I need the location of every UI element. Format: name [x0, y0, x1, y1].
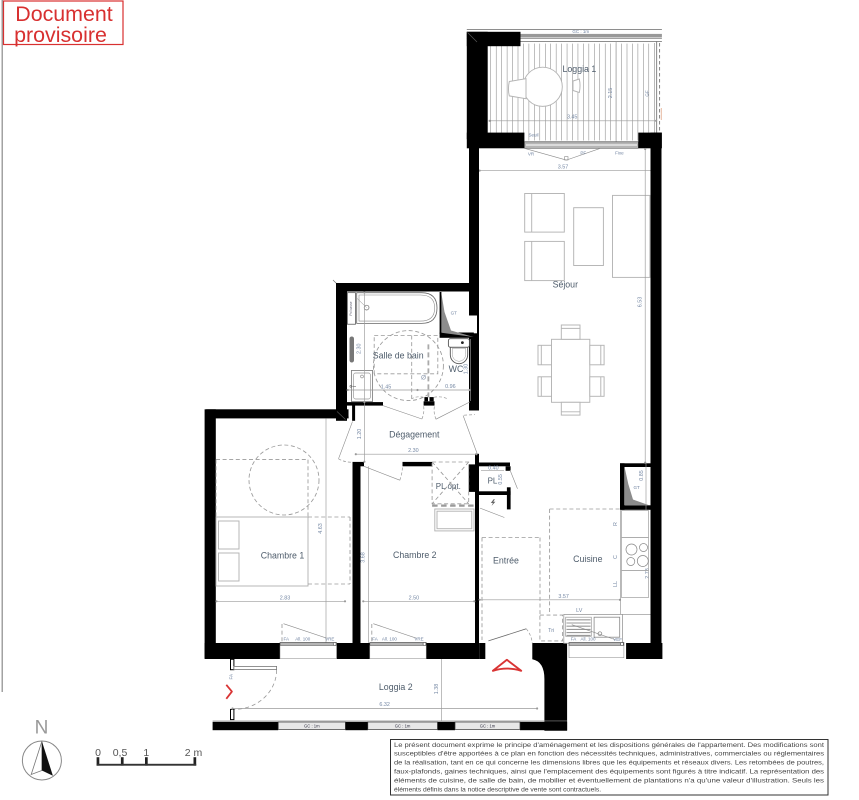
svg-text:0.40: 0.40: [488, 465, 499, 471]
svg-text:Cuisine: Cuisine: [573, 554, 602, 564]
svg-text:Entrée: Entrée: [493, 555, 519, 565]
svg-text:Le présent document exprime le: Le présent document exprime le principe …: [394, 742, 824, 749]
svg-text:éléments définis dans la notic: éléments définis dans la notice descript…: [394, 786, 601, 793]
svg-text:Seuil: Seuil: [528, 133, 538, 138]
svg-text:3.68: 3.68: [360, 552, 366, 563]
svg-text:FA: FA: [571, 637, 577, 642]
svg-text:VRE: VRE: [414, 636, 423, 641]
svg-text:1.38: 1.38: [434, 684, 440, 695]
svg-text:VRE: VRE: [325, 636, 334, 641]
svg-text:VEF: VEF: [613, 637, 622, 642]
svg-text:Chambre 2: Chambre 2: [393, 550, 437, 560]
svg-text:provisoire: provisoire: [14, 23, 107, 47]
svg-text:Séjour: Séjour: [553, 279, 578, 289]
svg-text:3.57: 3.57: [558, 165, 569, 171]
svg-text:6.53: 6.53: [638, 297, 644, 308]
svg-text:4.63: 4.63: [318, 523, 324, 534]
svg-text:WC: WC: [449, 364, 464, 374]
svg-text:0.55: 0.55: [498, 474, 504, 485]
svg-text:GC : 1m: GC : 1m: [572, 29, 589, 34]
svg-text:Salle de bain: Salle de bain: [373, 350, 424, 360]
svg-text:All. 100: All. 100: [580, 636, 596, 641]
svg-text:2.83: 2.83: [280, 595, 291, 601]
svg-text:2.15: 2.15: [608, 88, 614, 99]
svg-text:Loggia 1: Loggia 1: [563, 64, 597, 74]
svg-text:3.57: 3.57: [558, 594, 569, 600]
svg-text:FA: FA: [229, 674, 234, 680]
svg-text:0.96: 0.96: [445, 384, 456, 390]
svg-text:Dégagement: Dégagement: [389, 429, 440, 439]
svg-text:0,5: 0,5: [113, 747, 128, 759]
svg-text:éléments de cuisine, de salle: éléments de cuisine, de salle de bain, d…: [394, 777, 825, 784]
svg-text:LV: LV: [576, 608, 583, 614]
svg-text:2.30: 2.30: [408, 448, 419, 454]
svg-text:de la réalisation, tant en ce: de la réalisation, tant en ce qui concer…: [394, 760, 824, 767]
svg-text:LL: LL: [613, 581, 619, 587]
svg-text:Tri: Tri: [548, 628, 554, 634]
svg-text:2.30: 2.30: [356, 343, 362, 354]
svg-text:susceptibles d'être apportées: susceptibles d'être apportées à ce plan …: [394, 751, 825, 758]
svg-text:GT: GT: [451, 311, 458, 316]
svg-text:Chambre 1: Chambre 1: [261, 550, 305, 560]
svg-text:2.78: 2.78: [645, 568, 651, 579]
svg-text:GC : 1m: GC : 1m: [480, 724, 496, 729]
svg-text:N: N: [35, 718, 49, 739]
svg-text:2.50: 2.50: [409, 595, 420, 601]
svg-text:PL opt.: PL opt.: [436, 482, 461, 491]
svg-text:1.45: 1.45: [381, 384, 392, 390]
svg-text:faux-plafonds, gaines techniqu: faux-plafonds, gaines techniques, ainsi …: [394, 769, 825, 776]
svg-text:FA: FA: [372, 637, 378, 642]
svg-text:PF: PF: [580, 151, 586, 156]
svg-text:Ø: Ø: [421, 375, 426, 382]
svg-text:All. 100: All. 100: [382, 636, 398, 641]
svg-text:All. 100: All. 100: [295, 636, 311, 641]
svg-text:GC : 1m: GC : 1m: [395, 724, 411, 729]
svg-text:1.30: 1.30: [464, 364, 470, 375]
svg-text:R: R: [613, 522, 619, 526]
svg-text:VR: VR: [528, 152, 535, 157]
svg-text:PL: PL: [488, 476, 498, 485]
svg-text:0.85: 0.85: [639, 470, 645, 481]
svg-text:FA: FA: [283, 637, 289, 642]
svg-text:GC : 1m: GC : 1m: [304, 724, 320, 729]
svg-text:1.20: 1.20: [357, 429, 363, 440]
svg-text:Fixe: Fixe: [615, 151, 624, 156]
svg-text:GF: GF: [645, 90, 650, 97]
svg-text:6.32: 6.32: [379, 702, 390, 708]
svg-text:Pd basse: Pd basse: [349, 301, 353, 315]
svg-text:3.45: 3.45: [567, 115, 578, 121]
svg-text:GT: GT: [633, 485, 640, 490]
svg-text:Loggia 2: Loggia 2: [379, 682, 413, 692]
svg-text:C: C: [613, 555, 619, 559]
